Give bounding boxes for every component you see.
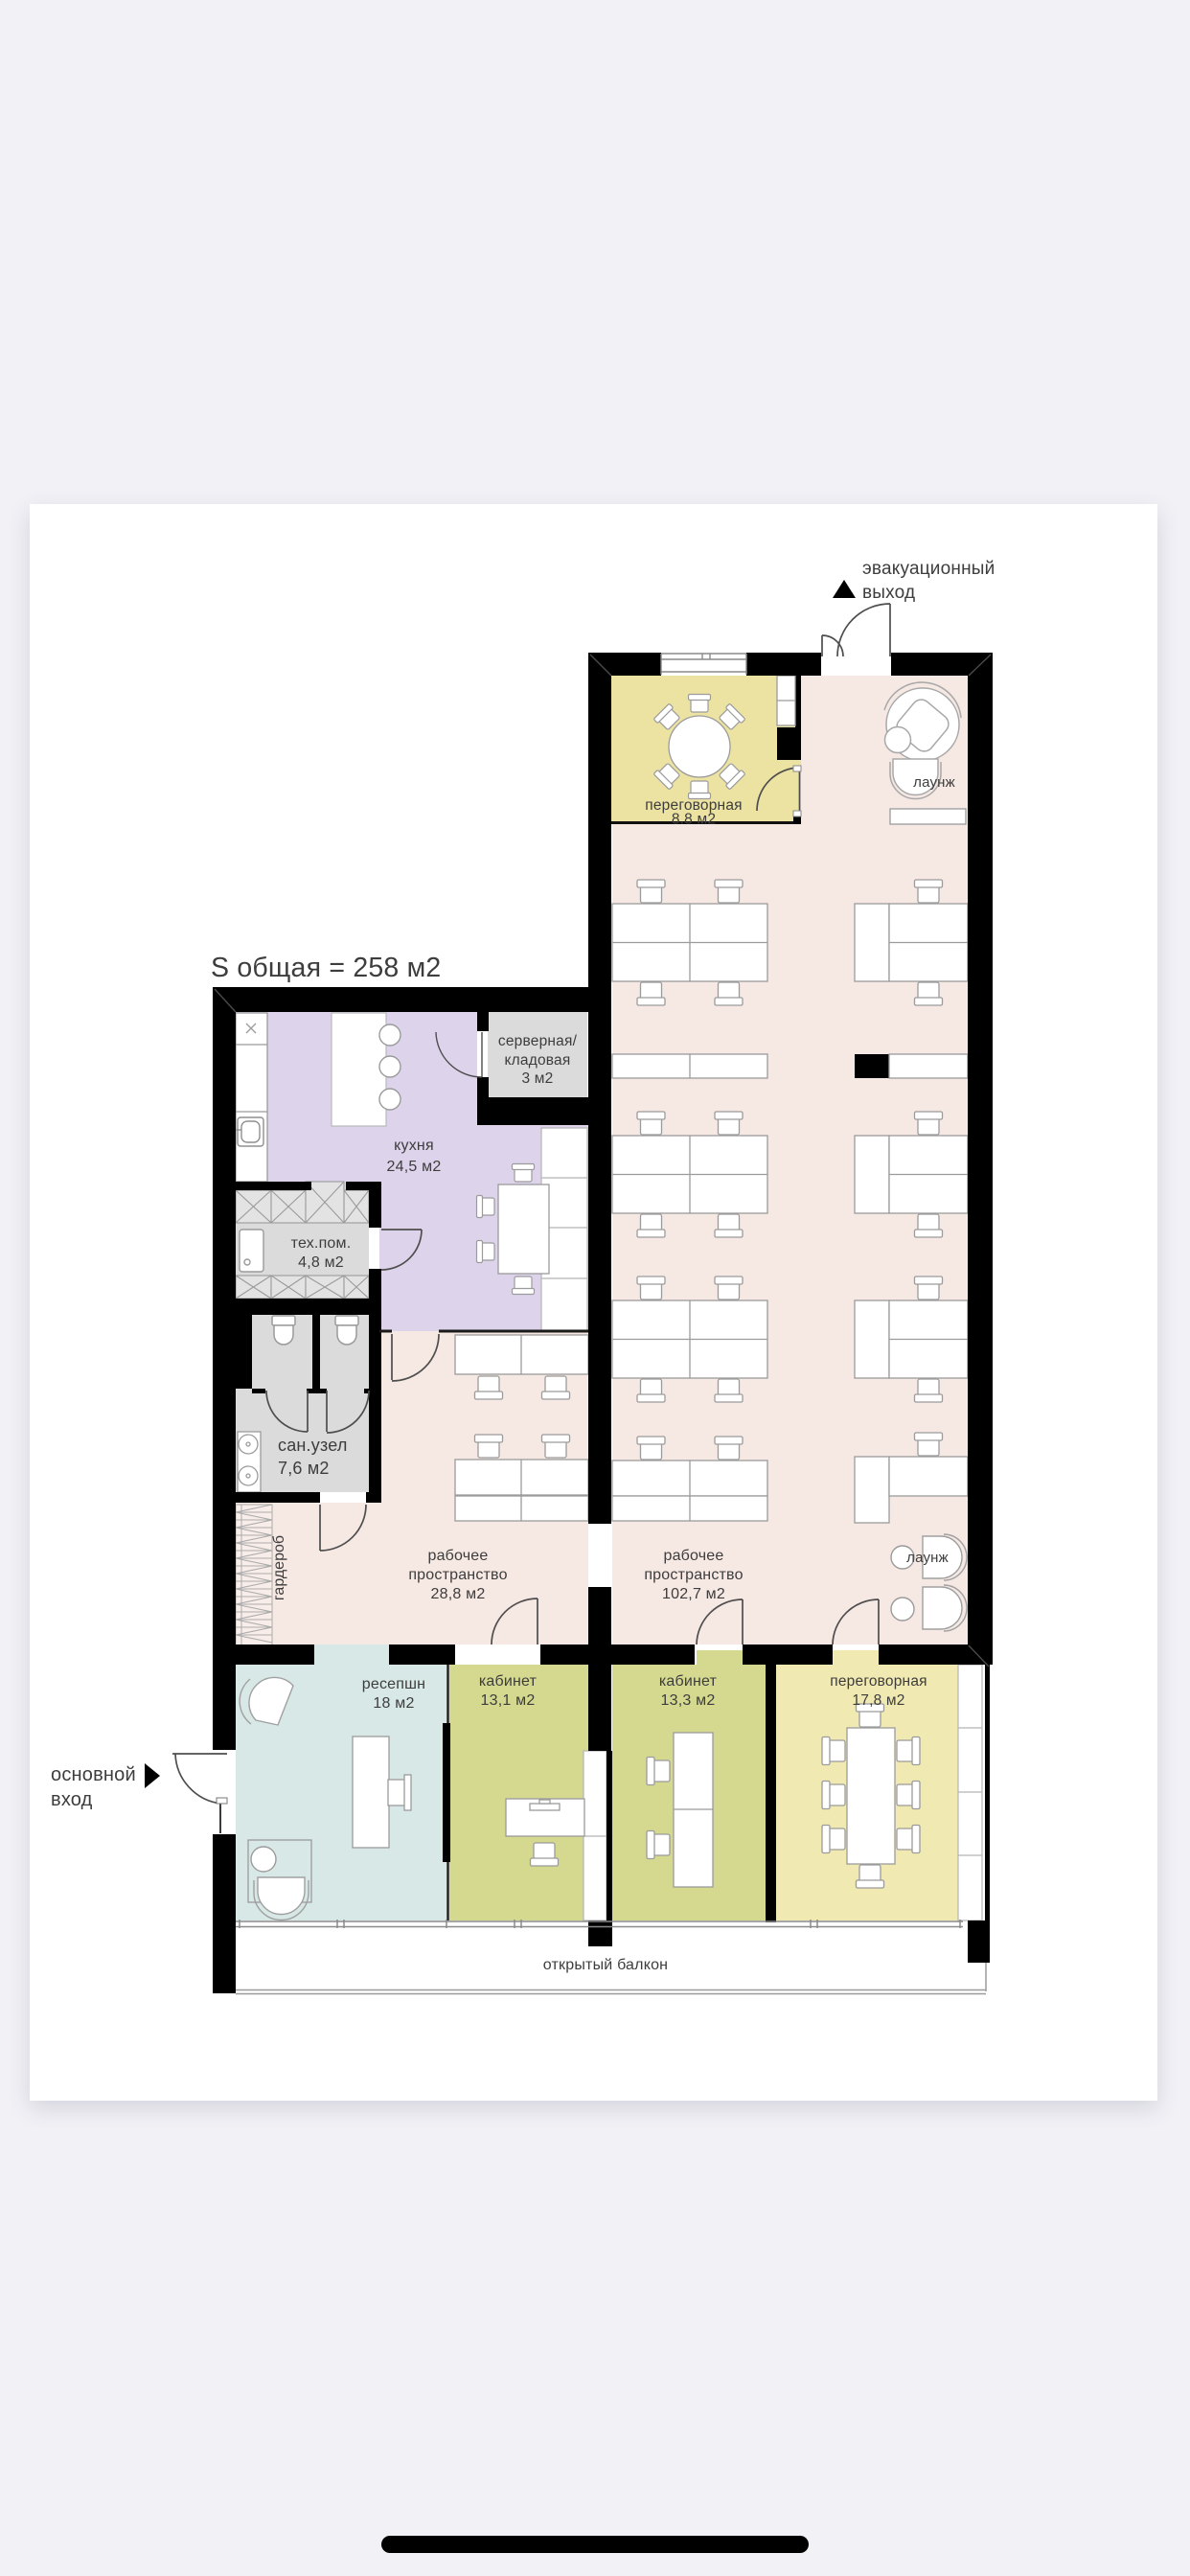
svg-text:3 м2: 3 м2 xyxy=(521,1070,553,1087)
svg-text:пространство: пространство xyxy=(408,1567,507,1583)
svg-text:гардероб: гардероб xyxy=(271,1535,287,1600)
svg-text:вход: вход xyxy=(51,1789,93,1810)
svg-text:открытый балкон: открытый балкон xyxy=(543,1957,668,1973)
svg-text:рабочее: рабочее xyxy=(427,1548,488,1564)
svg-text:7,6 м2: 7,6 м2 xyxy=(278,1459,330,1478)
svg-text:4,8 м2: 4,8 м2 xyxy=(298,1254,344,1271)
svg-text:переговорная: переговорная xyxy=(830,1673,927,1690)
svg-text:сан.узел: сан.узел xyxy=(278,1436,348,1455)
svg-text:18 м2: 18 м2 xyxy=(373,1695,414,1712)
svg-text:13,1 м2: 13,1 м2 xyxy=(481,1692,536,1709)
svg-text:кабинет: кабинет xyxy=(659,1673,718,1690)
svg-text:17,8 м2: 17,8 м2 xyxy=(852,1692,904,1709)
svg-text:лаунж: лаунж xyxy=(906,1550,949,1566)
svg-text:эвакуационный: эвакуационный xyxy=(862,559,995,579)
svg-text:ресепшн: ресепшн xyxy=(362,1676,425,1692)
svg-text:28,8 м2: 28,8 м2 xyxy=(431,1586,486,1602)
svg-text:кабинет: кабинет xyxy=(479,1673,538,1690)
svg-text:пространство: пространство xyxy=(644,1567,743,1583)
svg-text:кладовая: кладовая xyxy=(505,1052,571,1069)
svg-text:24,5 м2: 24,5 м2 xyxy=(387,1159,442,1175)
svg-text:серверная/: серверная/ xyxy=(498,1033,578,1049)
svg-text:лаунж: лаунж xyxy=(913,774,955,791)
svg-text:основной: основной xyxy=(51,1764,136,1785)
svg-text:S общая = 258 м2: S общая = 258 м2 xyxy=(211,953,441,983)
svg-text:102,7 м2: 102,7 м2 xyxy=(662,1586,725,1602)
svg-text:8.8 м2: 8.8 м2 xyxy=(672,812,716,828)
svg-text:13,3 м2: 13,3 м2 xyxy=(661,1692,716,1709)
svg-text:выход: выход xyxy=(862,583,915,603)
svg-text:кухня: кухня xyxy=(394,1138,434,1154)
svg-text:рабочее: рабочее xyxy=(663,1548,723,1564)
svg-text:тех.пом.: тех.пом. xyxy=(291,1235,352,1252)
